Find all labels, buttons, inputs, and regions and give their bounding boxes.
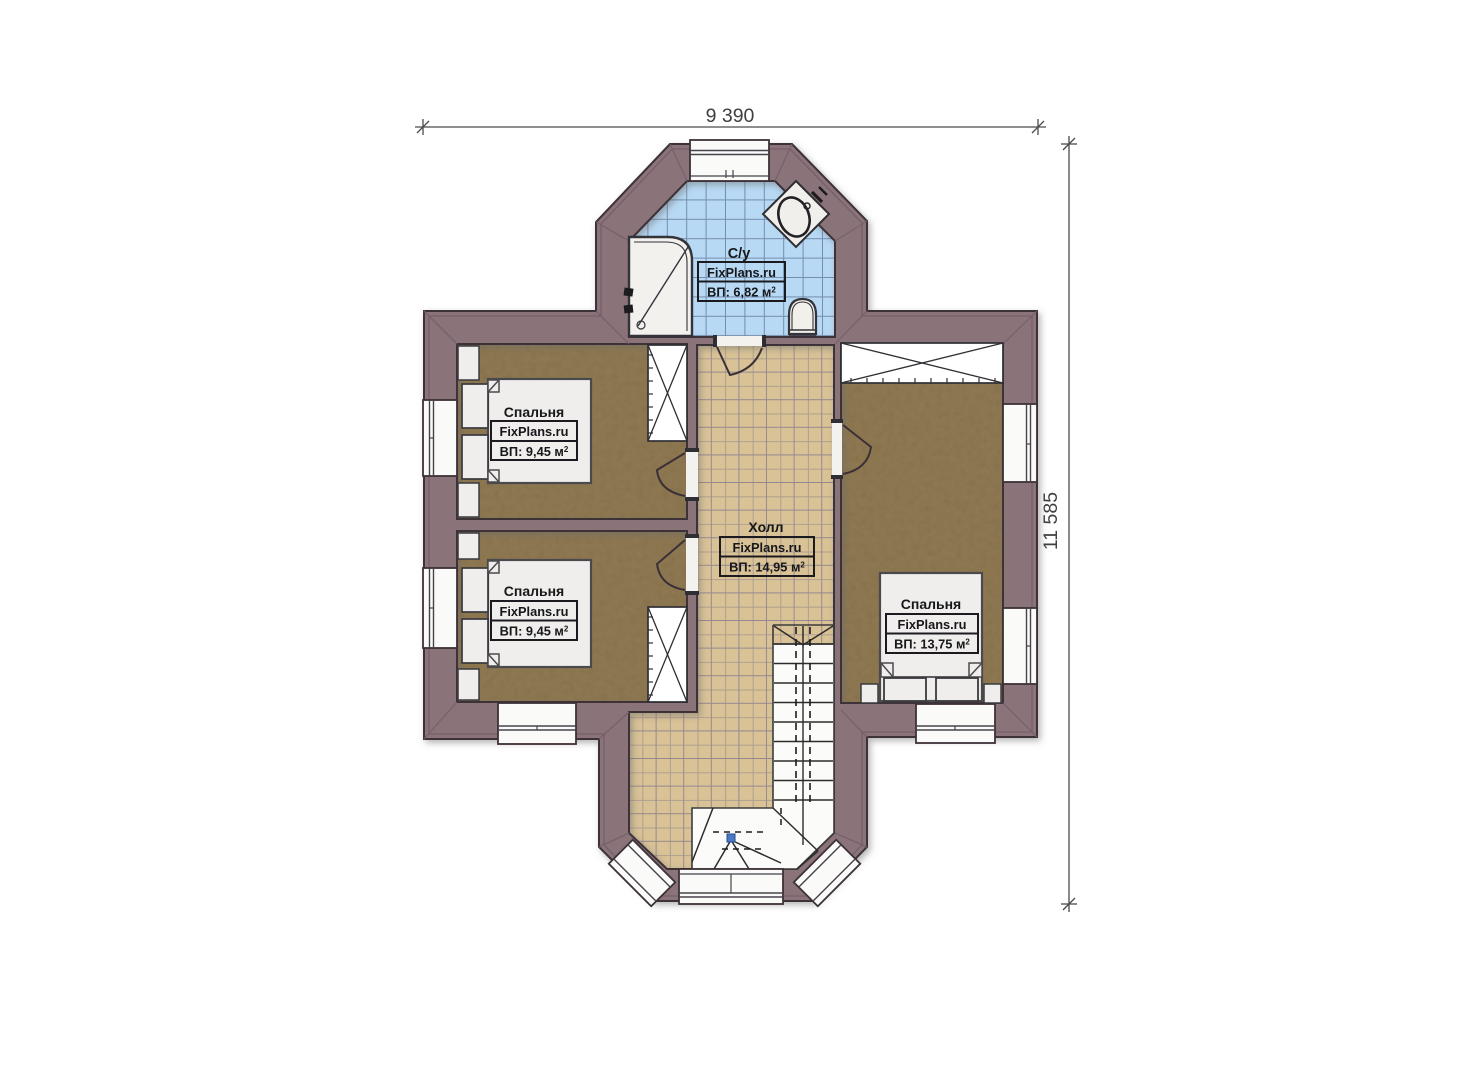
svg-text:Спальня: Спальня <box>504 583 564 599</box>
svg-text:Спальня: Спальня <box>504 404 564 420</box>
svg-text:Спальня: Спальня <box>901 596 961 612</box>
svg-text:FixPlans.ru: FixPlans.ru <box>500 424 569 439</box>
svg-text:ВП: 9,45 м2: ВП: 9,45 м2 <box>500 624 569 639</box>
svg-text:ВП: 13,75 м2: ВП: 13,75 м2 <box>894 637 970 652</box>
svg-text:FixPlans.ru: FixPlans.ru <box>733 540 802 555</box>
svg-text:С/у: С/у <box>728 246 751 262</box>
svg-text:ВП: 14,95 м2: ВП: 14,95 м2 <box>729 560 805 575</box>
svg-text:Холл: Холл <box>748 519 783 535</box>
svg-text:9 390: 9 390 <box>706 105 755 127</box>
svg-text:FixPlans.ru: FixPlans.ru <box>500 604 569 619</box>
svg-text:ВП: 9,45 м2: ВП: 9,45 м2 <box>500 444 569 459</box>
svg-text:FixPlans.ru: FixPlans.ru <box>898 617 967 632</box>
svg-text:ВП: 6,82 м2: ВП: 6,82 м2 <box>707 285 776 300</box>
svg-text:FixPlans.ru: FixPlans.ru <box>707 265 776 280</box>
svg-text:11 585: 11 585 <box>1040 492 1062 550</box>
